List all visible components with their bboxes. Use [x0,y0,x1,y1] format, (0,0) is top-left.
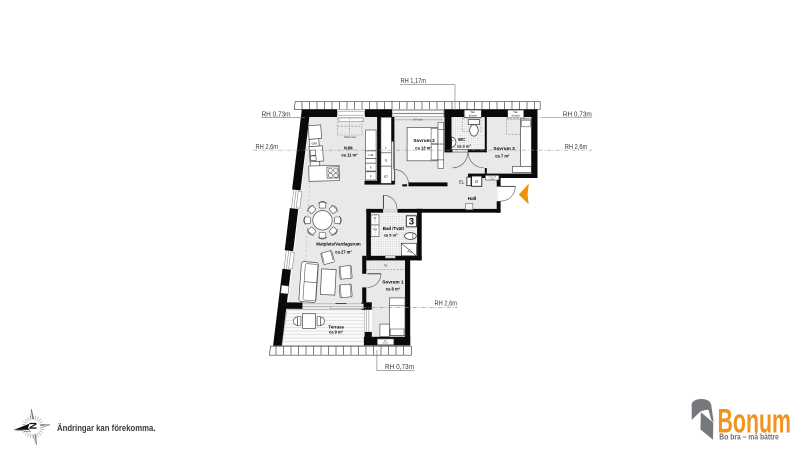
svg-text:TM: TM [373,228,378,232]
svg-text:Sovrum 1: Sovrum 1 [382,279,404,284]
svg-text:DM: DM [311,141,317,145]
svg-text:RH 0,73m: RH 0,73m [262,109,291,118]
svg-text:Sovrum 3: Sovrum 3 [493,146,515,151]
svg-text:F: F [370,175,372,179]
svg-text:RH 1,17m: RH 1,17m [401,76,427,85]
svg-text:ca 3 m²: ca 3 m² [457,144,471,149]
svg-text:Bo bra – må bättre: Bo bra – må bättre [719,432,779,441]
svg-text:Matplats/Vardagsrum: Matplats/Vardagsrum [316,242,361,247]
svg-text:fönster: fönster [469,113,477,117]
svg-text:L/M: L/M [368,153,374,157]
svg-text:N: N [29,422,40,429]
svg-text:Ändringar kan förekomma.: Ändringar kan förekomma. [57,423,156,433]
svg-text:fönster: fönster [512,113,520,117]
svg-text:fönster: fönster [383,342,389,345]
svg-text:ca 11 m²: ca 11 m² [341,153,358,158]
svg-text:BV-radd: BV-radd [413,118,423,122]
svg-text:G: G [385,158,388,162]
svg-text:ST: ST [384,175,388,179]
svg-text:Takfönster: Takfönster [344,135,357,139]
svg-text:K: K [370,166,372,170]
svg-text:Hall: Hall [468,196,476,201]
svg-text:RH 2,6m: RH 2,6m [256,142,279,151]
svg-text:ca 9 m²: ca 9 m² [329,330,344,335]
svg-text:RH 0,73m: RH 0,73m [385,362,414,371]
svg-text:WC: WC [458,137,466,142]
svg-text:vind: vind [490,179,493,181]
svg-text:Bad /Tvätt: Bad /Tvätt [383,226,405,231]
svg-text:EL: EL [459,179,465,184]
svg-text:TT: TT [373,216,377,220]
svg-text:ca 5 m²: ca 5 m² [384,232,398,237]
svg-text:Sovrum 2: Sovrum 2 [413,138,435,143]
svg-text:G: G [384,263,387,267]
svg-text:3: 3 [409,217,414,228]
svg-text:ca 13 m²: ca 13 m² [415,145,432,150]
svg-text:ca 27 m²: ca 27 m² [335,249,352,254]
svg-text:RH 2,6m: RH 2,6m [565,142,588,151]
svg-text:ca 8 m²: ca 8 m² [386,286,401,291]
svg-text:ca 7 m²: ca 7 m² [495,154,510,159]
svg-text:RH 2,6m: RH 2,6m [435,299,458,308]
svg-text:L: L [385,146,387,150]
svg-text:Terrass: Terrass [328,324,344,329]
svg-text:RH 0,73m: RH 0,73m [563,109,592,118]
svg-text:G: G [475,179,478,184]
